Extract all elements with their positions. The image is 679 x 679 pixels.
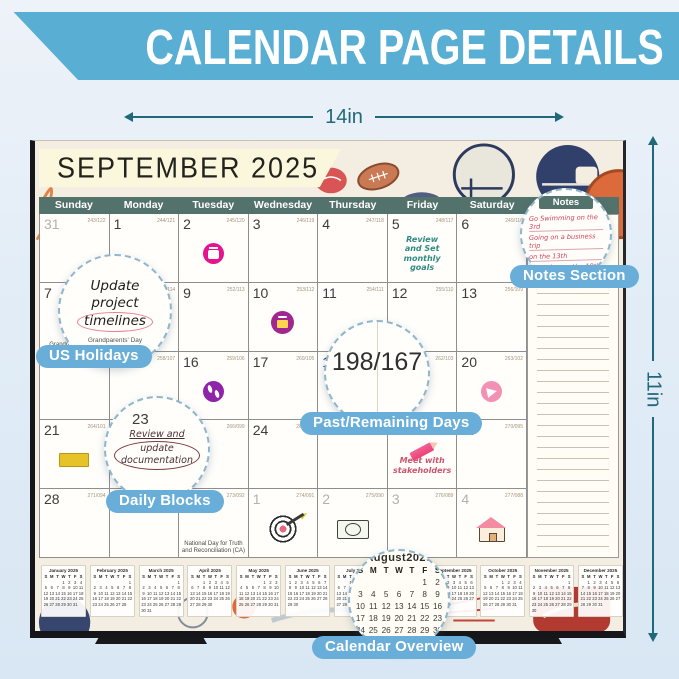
mini-day: 27	[615, 596, 621, 602]
mini-dow-label: M	[367, 565, 380, 577]
mini-day: 22	[418, 613, 431, 625]
past-remaining-meta: 252/113	[227, 287, 245, 293]
calendar-cell: 17260/105	[249, 352, 319, 421]
mini-day: 25	[78, 596, 84, 602]
past-remaining-meta: 262/103	[435, 356, 453, 362]
past-remaining-meta: 270/095	[505, 424, 523, 430]
cell-note: Review and Set monthly goals	[404, 235, 441, 273]
handwritten-note-line: Review and	[129, 429, 184, 441]
past-remaining-meta: 244/121	[157, 218, 175, 224]
day-number: 1	[114, 216, 122, 232]
mini-day: 1	[418, 577, 431, 589]
width-label: 14in	[325, 106, 363, 129]
mini-month-title: May 2025	[238, 568, 279, 573]
mini-day: 8	[418, 589, 431, 601]
note-entry: Going on a business trip	[529, 230, 603, 251]
day-number: 17	[253, 354, 269, 370]
us-holidays-callout: US Holidays	[36, 345, 152, 368]
mini-month-title: November 2025	[531, 568, 572, 573]
day-number: 2	[183, 216, 191, 232]
mini-dow-label: W	[393, 565, 406, 577]
mini-day: 4	[367, 589, 380, 601]
past-remaining-meta: 263/102	[505, 356, 523, 362]
past-remaining-meta: 266/099	[227, 424, 245, 430]
mini-day: 18	[367, 613, 380, 625]
mini-month-title: March 2025	[141, 568, 182, 573]
mini-day: 3	[354, 589, 367, 601]
mini-day: 19	[380, 613, 393, 625]
calendar-cell: 21264/101	[40, 420, 110, 489]
mini-day: 31	[598, 602, 604, 608]
mini-day: 7	[405, 589, 418, 601]
mini-month-grid: SMTWTFS123456789101112131415161718192021…	[141, 574, 182, 613]
mini-day: 30	[207, 602, 213, 608]
mini-day: 28	[405, 625, 418, 637]
mini-day: 6	[393, 589, 406, 601]
day-number: 21	[44, 422, 60, 438]
height-arrow-down	[648, 633, 658, 642]
day-header: Friday	[388, 197, 458, 214]
day-header: Wednesday	[248, 197, 318, 214]
past-remaining-meta: 271/094	[87, 493, 105, 499]
mini-month: May 2025SMTWTFS1234567891011121314151617…	[236, 565, 281, 617]
mini-month: February 2025SMTWTFS12345678910111213141…	[90, 565, 135, 617]
mini-month-grid: SMTWTFS123456789101112131415161718192021…	[531, 574, 572, 613]
handwritten-note-line: Update	[91, 278, 140, 295]
daily-blocks-callout: Daily Blocks	[106, 490, 224, 513]
past-remaining-meta: 264/101	[87, 424, 105, 430]
mini-month-grid: SMTWTFS123456789101112131415161718192021…	[238, 574, 279, 608]
highlight-yellow-sticker	[59, 453, 89, 467]
megaphone-pink-sticker	[481, 381, 502, 402]
mini-month-title: October 2025	[482, 568, 523, 573]
past-remaining-meta: 259/106	[227, 356, 245, 362]
mini-month-grid: SMTWTFS123456789101112131415161718192021…	[482, 574, 523, 608]
mini-day: 27	[393, 625, 406, 637]
month-title-band: SEPTEMBER 2025	[39, 149, 341, 187]
notes-bubble-header: Notes	[539, 196, 593, 209]
handwritten-note-circled: update documentation	[114, 441, 200, 470]
calendar-pink-sticker	[203, 243, 224, 264]
mini-day: 13	[393, 601, 406, 613]
past-remaining-meta: 258/107	[157, 356, 175, 362]
calendar-cell: 3276/089	[388, 489, 458, 558]
mini-day-blank	[380, 577, 393, 589]
mini-day-blank	[393, 577, 406, 589]
past-remaining-magnifier-bubble: 198/167	[324, 320, 430, 426]
past-remaining-meta: 274/091	[296, 493, 314, 499]
calendar-cell: 9252/113	[179, 283, 249, 352]
mini-month-title: February 2025	[92, 568, 133, 573]
notes-ruled-lines	[537, 261, 609, 549]
day-header: Monday	[109, 197, 179, 214]
mini-day: 20	[393, 613, 406, 625]
past-remaining-meta: 246/119	[297, 218, 315, 224]
calendar-cell: 20263/102	[457, 352, 527, 421]
mini-month-title: December 2025	[580, 568, 621, 573]
mini-day: 31	[512, 602, 518, 608]
notes-section-callout: Notes Section	[510, 265, 639, 288]
mini-day: 2	[431, 577, 444, 589]
past-remaining-meta: 273/092	[227, 493, 245, 499]
day-number: 4	[461, 491, 469, 507]
day-number: 10	[253, 285, 269, 301]
calendar-cell: 1274/091	[249, 489, 319, 558]
day-number: 13	[461, 285, 477, 301]
day-number: 6	[461, 216, 469, 232]
height-line-bottom	[652, 417, 654, 633]
mini-day: 11	[367, 601, 380, 613]
day-number: 16	[183, 354, 199, 370]
mini-day: 28	[322, 596, 328, 602]
mini-day: 31	[273, 602, 279, 608]
product-image: CALENDAR PAGE DETAILS 14in 11in	[0, 0, 679, 679]
day-number: 1	[253, 491, 261, 507]
camera-purple-sticker	[271, 311, 294, 334]
past-remaining-meta: 260/105	[296, 356, 314, 362]
day-header: Thursday	[318, 197, 388, 214]
past-remaining-meta: 253/112	[297, 287, 315, 293]
calendar-cell: 10253/112	[249, 283, 319, 352]
cell-note: Meet with stakeholders	[393, 456, 451, 475]
calendar-cell: 13256/109	[457, 283, 527, 352]
mini-day: 29	[566, 602, 572, 608]
mini-month-title: January 2025	[43, 568, 84, 573]
month-title: SEPTEMBER 2025	[57, 152, 319, 185]
handwritten-note-circled: timelines	[77, 312, 153, 332]
mini-day: 14	[405, 601, 418, 613]
calendar-cell: 28271/094	[40, 489, 110, 558]
mini-month-title: June 2025	[287, 568, 328, 573]
past-remaining-meta: 276/089	[435, 493, 453, 499]
past-remaining-meta: 255/110	[436, 287, 454, 293]
calendar-cell: 4277/088	[457, 489, 527, 558]
height-label: 11in	[642, 371, 665, 407]
height-arrow-up	[648, 136, 658, 145]
bubble-day-number: 23	[132, 411, 149, 428]
height-dimension: 11in	[642, 136, 664, 642]
past-remaining-meta: 275/090	[366, 493, 384, 499]
mini-dow-label: F	[418, 565, 431, 577]
day-header: Saturday	[457, 197, 527, 214]
mini-day-blank	[354, 577, 367, 589]
mini-month-grid: SMTWTFS123456789101112131415161718192021…	[43, 574, 84, 608]
target-sticker	[268, 514, 298, 544]
day-number: 9	[183, 285, 191, 301]
mini-day: 26	[380, 625, 393, 637]
house-sticker	[479, 527, 505, 542]
mini-month: April 2025SMTWTFS12345678910111213141516…	[187, 565, 232, 617]
day-header: Sunday	[39, 197, 109, 214]
day-number: 4	[322, 216, 330, 232]
mini-day: 10	[354, 601, 367, 613]
height-line-top	[652, 145, 654, 361]
day-number: 3	[392, 491, 400, 507]
calendar-cell: 2245/120	[179, 214, 249, 283]
width-dimension: 14in	[126, 105, 562, 129]
mini-day: 25	[517, 596, 523, 602]
mini-month: January 2025SMTWTFS123456789101112131415…	[41, 565, 86, 617]
note-entry: Go Swimming on the 3rd	[529, 211, 603, 232]
mini-dow-label: T	[405, 565, 418, 577]
mini-day: 22	[127, 596, 133, 602]
day-number: 11	[322, 285, 337, 301]
past-remaining-meta: 243/122	[87, 218, 105, 224]
mini-day: 12	[380, 601, 393, 613]
mini-day: 28	[121, 602, 127, 608]
past-remaining-value: 198/167	[332, 348, 422, 377]
mini-day: 31	[146, 608, 152, 614]
day-header: Tuesday	[178, 197, 248, 214]
day-number: 5	[392, 216, 400, 232]
mini-day: 29	[418, 625, 431, 637]
mini-day: 25	[367, 625, 380, 637]
mini-month-grid: SMTWTFS123456789101112131415161718192021…	[189, 574, 230, 608]
past-remaining-meta: 245/120	[227, 218, 245, 224]
past-remaining-meta: 248/117	[436, 218, 454, 224]
day-number: 3	[253, 216, 261, 232]
mini-day: 31	[72, 602, 78, 608]
calendar-cell: 5248/117Review and Set monthly goals	[388, 214, 458, 283]
calendar-cell: 2275/090	[318, 489, 388, 558]
mini-day: 26	[225, 596, 231, 602]
past-remaining-meta: 247/118	[366, 218, 384, 224]
width-arrow-right	[375, 116, 562, 118]
mini-month-grid: SMTWTFS123456789101112131415161718192021…	[92, 574, 133, 608]
day-number: 2	[322, 491, 330, 507]
mini-day: 29	[176, 602, 182, 608]
mini-day: 23	[431, 613, 444, 625]
past-remaining-meta: 254/111	[367, 287, 384, 293]
mini-day: 17	[354, 613, 367, 625]
mini-day: 27	[469, 596, 475, 602]
mini-month-grid: SMTWTFS123456789101112131415161718192021…	[580, 574, 621, 608]
calendar-cell: 3246/119	[249, 214, 319, 283]
handwritten-note-line: project	[91, 295, 138, 312]
day-number: 7	[44, 285, 52, 301]
mini-day: 15	[418, 601, 431, 613]
mini-month-title: April 2025	[189, 568, 230, 573]
width-arrow-left	[126, 116, 313, 118]
past-remaining-meta: 277/088	[505, 493, 523, 499]
bubble-holiday-label: Grandparents' Day	[88, 337, 142, 344]
calendar-cell: 4247/118	[318, 214, 388, 283]
calendar-overview-callout: Calendar Overview	[312, 636, 476, 659]
banner-title: CALENDAR PAGE DETAILS	[145, 17, 663, 75]
daily-block-magnifier-bubble: 23 Review and update documentation	[104, 396, 210, 502]
money-sticker	[337, 520, 369, 539]
banner: CALENDAR PAGE DETAILS	[0, 12, 679, 80]
day-number: 31	[44, 216, 60, 232]
mini-day: 5	[380, 589, 393, 601]
mini-day: 21	[405, 613, 418, 625]
mini-day: 9	[431, 589, 444, 601]
mini-day-blank	[405, 577, 418, 589]
past-remaining-days-callout: Past/Remaining Days	[300, 412, 482, 435]
day-number: 28	[44, 491, 60, 507]
mini-month: October 2025SMTWTFS123456789101112131415…	[480, 565, 525, 617]
steps-purple-sticker	[203, 381, 224, 402]
day-number: 12	[392, 285, 408, 301]
mini-dow-label: T	[380, 565, 393, 577]
day-number: 24	[253, 422, 269, 438]
mini-month-grid: SMTWTFS123456789101112131415161718192021…	[287, 574, 328, 608]
mini-months-strip: January 2025SMTWTFS123456789101112131415…	[41, 565, 623, 619]
mini-day: 16	[431, 601, 444, 613]
mini-month: March 2025SMTWTFS12345678910111213141516…	[139, 565, 184, 617]
holiday-label: National Day for Truth and Reconciliatio…	[179, 541, 248, 555]
day-header-row: SundayMondayTuesdayWednesdayThursdayFrid…	[39, 197, 527, 214]
mini-month: June 2025SMTWTFS123456789101112131415161…	[285, 565, 330, 617]
mini-day: 30	[293, 602, 299, 608]
mini-month: December 2025SMTWTFS12345678910111213141…	[578, 565, 623, 617]
mini-day-blank	[367, 577, 380, 589]
mini-month: November 2025SMTWTFS12345678910111213141…	[529, 565, 574, 617]
mini-day: 30	[531, 608, 537, 614]
day-number: 20	[461, 354, 477, 370]
